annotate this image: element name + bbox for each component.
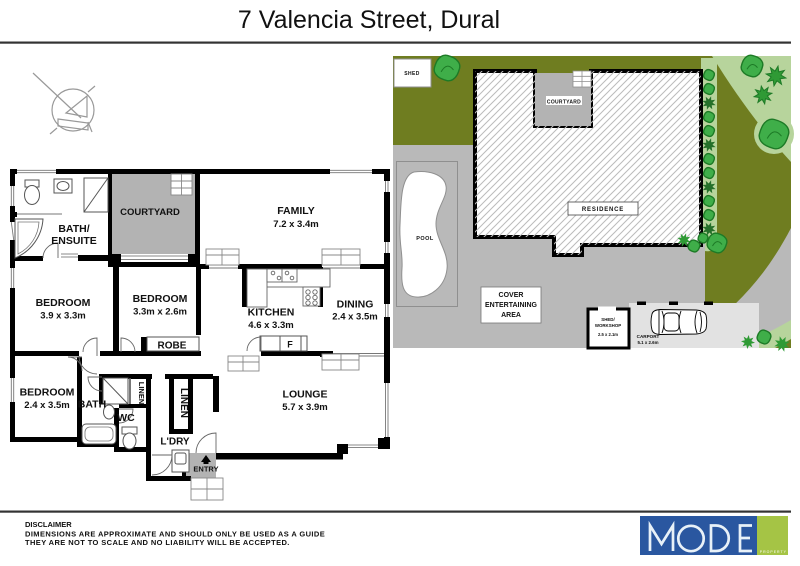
svg-text:F: F bbox=[287, 340, 293, 350]
svg-text:ENTRY: ENTRY bbox=[193, 465, 218, 474]
svg-text:7.2 x 3.4m: 7.2 x 3.4m bbox=[273, 219, 318, 230]
svg-text:2.4 x 3.5m: 2.4 x 3.5m bbox=[24, 400, 69, 411]
svg-text:COURTYARD: COURTYARD bbox=[120, 207, 180, 218]
svg-text:2.5 x 2.1m: 2.5 x 2.1m bbox=[598, 332, 618, 337]
svg-text:SHED: SHED bbox=[404, 71, 420, 77]
svg-text:COURTYARD: COURTYARD bbox=[547, 100, 581, 106]
svg-text:5.7 x 3.9m: 5.7 x 3.9m bbox=[282, 402, 327, 413]
svg-text:ENTERTAINING: ENTERTAINING bbox=[485, 302, 538, 309]
svg-text:POOL: POOL bbox=[416, 236, 434, 242]
svg-text:BATH/: BATH/ bbox=[58, 223, 89, 235]
svg-text:2.4 x 3.5m: 2.4 x 3.5m bbox=[332, 312, 377, 323]
svg-text:THEY ARE NOT TO SCALE AND NO L: THEY ARE NOT TO SCALE AND NO LIABILITY W… bbox=[25, 538, 290, 547]
svg-text:COVER: COVER bbox=[499, 292, 524, 299]
svg-text:LINEN: LINEN bbox=[137, 382, 146, 405]
svg-text:CARPORT: CARPORT bbox=[637, 334, 660, 339]
svg-text:ROBE: ROBE bbox=[158, 341, 187, 352]
svg-text:3.3m x 2.6m: 3.3m x 2.6m bbox=[133, 307, 187, 318]
svg-text:DISCLAIMER: DISCLAIMER bbox=[25, 520, 72, 529]
svg-text:PROPERTY: PROPERTY bbox=[760, 550, 787, 554]
svg-text:BATH: BATH bbox=[78, 399, 106, 411]
svg-text:RESIDENCE: RESIDENCE bbox=[582, 207, 624, 213]
svg-text:SHED/: SHED/ bbox=[601, 317, 615, 322]
svg-text:KITCHEN: KITCHEN bbox=[248, 307, 295, 319]
svg-text:BEDROOM: BEDROOM bbox=[36, 297, 91, 309]
svg-text:5.1 x 2.6m: 5.1 x 2.6m bbox=[638, 340, 659, 345]
svg-text:LINEN: LINEN bbox=[178, 388, 189, 418]
svg-text:WC: WC bbox=[117, 412, 135, 424]
svg-text:DINING: DINING bbox=[337, 299, 374, 311]
svg-text:3.9 x 3.3m: 3.9 x 3.3m bbox=[40, 311, 85, 322]
svg-text:BEDROOM: BEDROOM bbox=[133, 293, 188, 305]
svg-text:ENSUITE: ENSUITE bbox=[51, 235, 97, 247]
svg-text:AREA: AREA bbox=[501, 312, 521, 319]
svg-text:LOUNGE: LOUNGE bbox=[283, 389, 328, 401]
svg-text:WORKSHOP: WORKSHOP bbox=[595, 323, 621, 328]
svg-text:FAMILY: FAMILY bbox=[277, 205, 315, 217]
svg-text:BEDROOM: BEDROOM bbox=[20, 387, 75, 399]
svg-text:L'DRY: L'DRY bbox=[160, 437, 190, 448]
svg-text:7 Valencia Street, Dural: 7 Valencia Street, Dural bbox=[238, 6, 500, 34]
svg-text:4.6 x 3.3m: 4.6 x 3.3m bbox=[248, 320, 293, 331]
